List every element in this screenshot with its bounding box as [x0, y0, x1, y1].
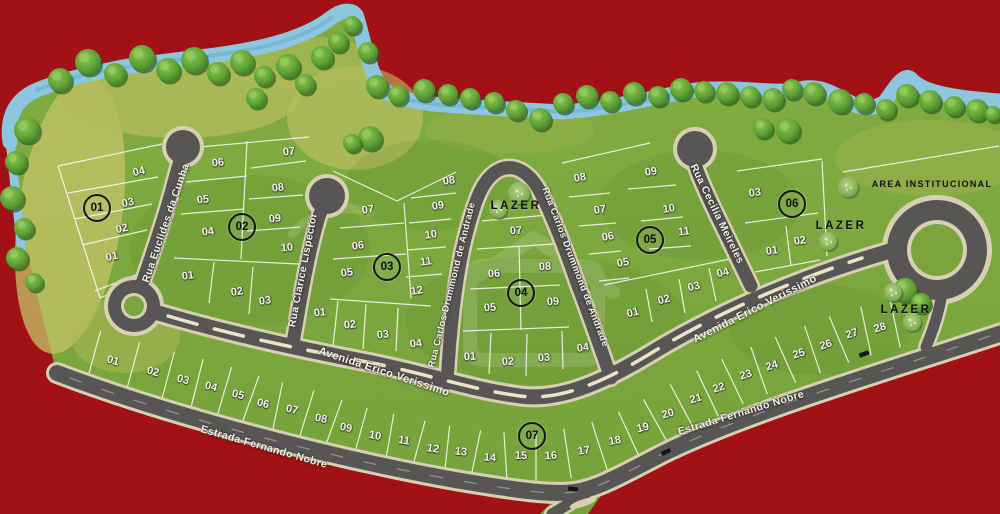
lot-number: 05	[616, 256, 630, 270]
lot-number: 02	[793, 234, 807, 248]
lot-number: 06	[351, 239, 365, 253]
lot-number: 07	[361, 203, 375, 217]
block-number-badge: 07	[518, 422, 546, 450]
lot-number: 13	[454, 445, 467, 458]
lot-number: 10	[424, 228, 438, 242]
lot-number: 21	[688, 391, 703, 406]
lot-number: 05	[231, 388, 246, 403]
lot-number: 02	[230, 285, 244, 299]
street-label: Rua Euclides da Cunha	[140, 162, 192, 284]
lot-number: 28	[872, 321, 887, 336]
lot-number: 01	[105, 354, 120, 369]
lot-number: 24	[764, 358, 779, 373]
lot-number: 06	[487, 268, 500, 281]
lot-number: 10	[662, 202, 676, 216]
lot-number: 22	[711, 380, 726, 395]
lot-number: 09	[546, 296, 559, 309]
lot-number: 03	[748, 186, 762, 200]
site-plan-map: 0101020304020102030405060708091003010203…	[0, 0, 1000, 514]
area-label-lazer: LAZER	[491, 200, 542, 212]
lot-number: 03	[376, 328, 389, 341]
lot-number: 11	[677, 225, 690, 239]
area-label-lazer: LAZER	[881, 304, 932, 316]
lot-number: 08	[538, 261, 551, 274]
area-label-institutional: AREA INSTITUCIONAL	[872, 179, 993, 189]
lot-number: 01	[105, 250, 119, 264]
map-labels: 0101020304020102030405060708091003010203…	[0, 0, 1000, 514]
lot-number: 11	[419, 255, 432, 269]
lot-number: 12	[426, 442, 440, 456]
lot-number: 09	[339, 421, 353, 435]
lot-number: 23	[738, 367, 753, 382]
lot-number: 07	[285, 403, 300, 417]
lot-number: 26	[818, 337, 833, 352]
lot-number: 05	[340, 266, 354, 280]
lot-number: 10	[280, 241, 293, 254]
lot-number: 07	[509, 225, 522, 238]
lot-number: 01	[313, 306, 326, 319]
lot-number: 17	[577, 444, 591, 457]
lot-number: 10	[368, 429, 382, 443]
lot-number: 09	[431, 199, 445, 213]
lot-number: 20	[660, 407, 675, 422]
lot-number: 04	[716, 266, 731, 281]
lot-number: 15	[515, 450, 527, 462]
lot-number: 25	[791, 346, 806, 361]
block-number-badge: 04	[507, 279, 535, 307]
lot-number: 04	[576, 341, 590, 355]
lot-number: 09	[268, 212, 281, 225]
lot-number: 05	[196, 193, 209, 206]
lot-number: 12	[410, 284, 424, 298]
lot-number: 08	[442, 174, 456, 188]
lot-number: 03	[121, 196, 135, 210]
lot-number: 14	[483, 452, 496, 465]
lot-number: 09	[644, 165, 658, 179]
lot-number: 04	[409, 337, 422, 350]
lot-number: 02	[145, 365, 160, 380]
lot-number: 07	[282, 145, 295, 158]
lot-number: 04	[201, 225, 214, 238]
lot-number: 02	[501, 356, 514, 369]
lot-number: 05	[483, 302, 496, 315]
lot-number: 08	[314, 412, 328, 426]
street-label: Avenida Erico Verissimo	[691, 273, 819, 346]
lot-number: 03	[537, 352, 550, 365]
block-number-badge: 03	[373, 253, 401, 281]
lot-number: 04	[132, 165, 146, 179]
block-number-badge: 06	[778, 190, 806, 218]
lot-number: 19	[636, 421, 651, 436]
lot-number: 03	[258, 294, 272, 308]
lot-number: 27	[844, 326, 859, 341]
lot-number: 03	[176, 373, 191, 388]
lot-number: 04	[204, 380, 219, 395]
lot-number: 02	[657, 293, 672, 308]
lot-number: 16	[545, 450, 558, 463]
lot-number: 08	[271, 181, 284, 194]
lot-number: 06	[601, 230, 615, 244]
lot-number: 06	[256, 397, 271, 412]
lot-number: 18	[608, 434, 622, 448]
street-label: Rua Cecilia Meireles	[688, 162, 747, 266]
lot-number: 02	[115, 222, 129, 236]
block-number-badge: 02	[228, 213, 256, 241]
lot-number: 01	[463, 351, 476, 364]
street-label: Estrada Fernando Nobre	[199, 423, 329, 471]
lot-number: 11	[397, 434, 410, 448]
lot-number: 07	[593, 203, 607, 217]
block-number-badge: 05	[636, 226, 664, 254]
street-label: Rua Carlos Drummond de Andrade	[426, 201, 478, 369]
lot-number: 08	[573, 171, 587, 185]
lot-number: 03	[687, 280, 702, 295]
lot-number: 01	[181, 269, 195, 283]
lot-number: 02	[343, 318, 356, 331]
block-number-badge: 01	[83, 194, 111, 222]
lot-number: 06	[211, 156, 224, 169]
lot-number: 01	[765, 244, 779, 258]
area-label-lazer: LAZER	[816, 220, 867, 232]
lot-number: 01	[626, 306, 641, 321]
